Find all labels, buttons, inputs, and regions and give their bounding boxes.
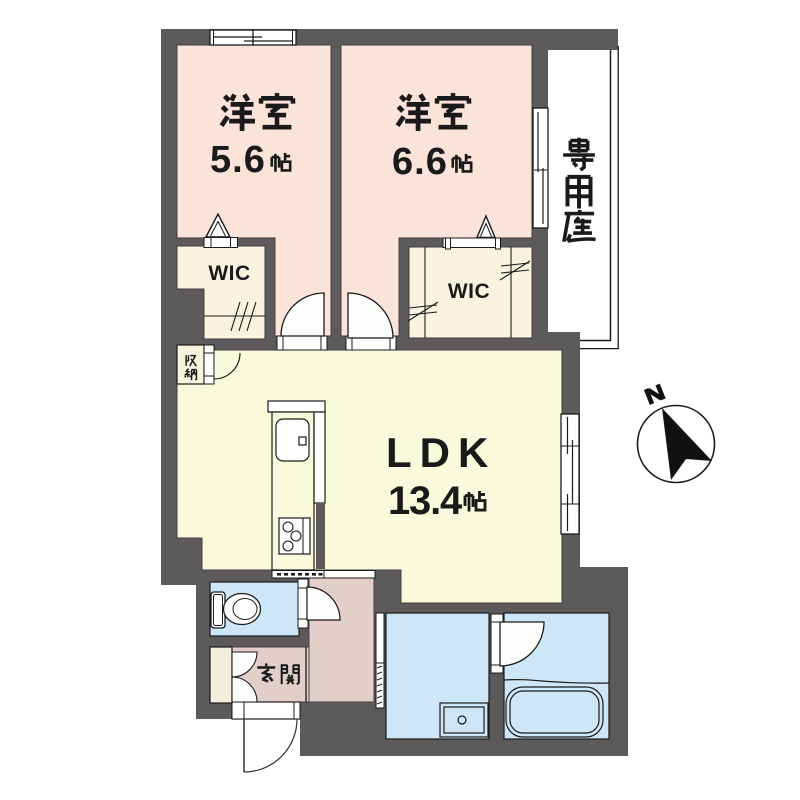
- svg-text:5.6: 5.6: [210, 139, 266, 181]
- svg-text:WIC: WIC: [208, 262, 250, 285]
- svg-text:WIC: WIC: [448, 280, 490, 303]
- svg-text:LDK: LDK: [386, 429, 496, 476]
- svg-text:13.4: 13.4: [388, 479, 463, 523]
- svg-text:6.6: 6.6: [392, 141, 448, 183]
